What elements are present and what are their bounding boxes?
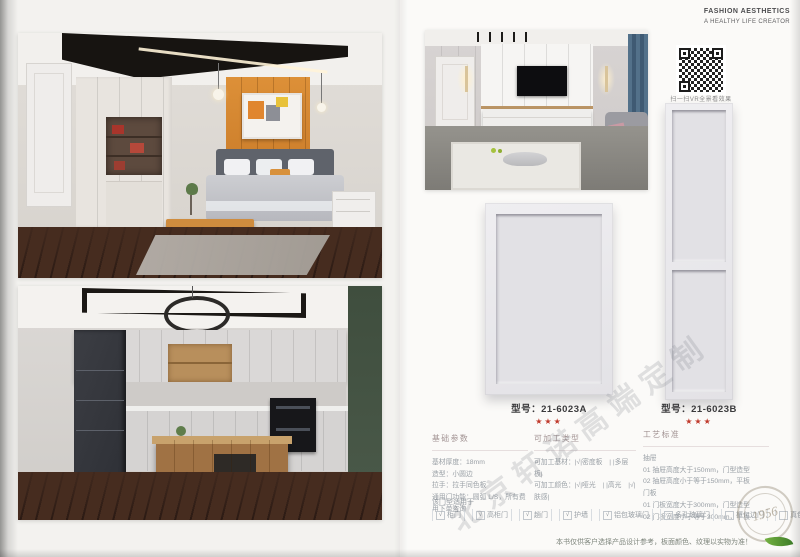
door-panel-b bbox=[665, 103, 733, 400]
checkbox-icon: √ bbox=[563, 511, 572, 520]
qr-finder bbox=[679, 48, 690, 59]
spec-process-types: 可加工类型 可加工基材：|√|密度板 | |多层板| 可加工颜色：|√|哑光 |… bbox=[534, 432, 636, 504]
spec-basic-title: 基础参数 bbox=[432, 432, 528, 451]
kitchen-oven-display bbox=[276, 406, 310, 409]
spec-line: 拉手：拉手同色板 bbox=[432, 480, 528, 492]
footer-note: 本书仅供客户选择产品设计参考，板面颜色、纹理以实物为准！ bbox=[556, 537, 752, 547]
bedroom-red-box bbox=[114, 161, 125, 170]
spec-line: 抽屉 bbox=[643, 453, 769, 465]
bedroom-plant-stand bbox=[190, 195, 192, 215]
kitchen-floor bbox=[18, 472, 382, 520]
bedroom-pendant-cord bbox=[321, 73, 322, 105]
bedroom-duvet bbox=[206, 175, 344, 221]
applicable-item-label: 趟门 bbox=[534, 510, 548, 520]
checkbox-icon bbox=[664, 511, 673, 520]
bedroom-pillow bbox=[288, 159, 314, 175]
living-chandelier bbox=[477, 32, 537, 42]
brand-line1: FASHION AESTHETICS bbox=[704, 7, 790, 18]
door-panel-a-inner bbox=[496, 214, 602, 384]
applicable-item: √护墙 bbox=[559, 509, 592, 521]
checkbox-icon: √ bbox=[603, 511, 612, 520]
brand-line2: A HEALTHY LIFE CREATOR bbox=[704, 18, 790, 27]
bedroom-art-shape bbox=[266, 105, 280, 121]
kitchen-tall-cabinet bbox=[74, 330, 126, 482]
applicable-item-label: 多孔玻璃门 bbox=[675, 510, 710, 520]
bedroom-wardrobe-drawers bbox=[106, 181, 162, 228]
spec-standard-title: 工艺标准 bbox=[643, 428, 769, 447]
kitchen-oven-display bbox=[276, 428, 310, 431]
checkbox-icon bbox=[725, 511, 734, 520]
applicable-label: 该门型适用于 bbox=[432, 497, 474, 507]
living-sconce bbox=[465, 66, 468, 92]
bedroom-photo bbox=[18, 33, 382, 278]
living-console-drawer-line bbox=[483, 117, 591, 118]
stamp-year: 1956 bbox=[740, 489, 791, 540]
kitchen-tall-shelf bbox=[76, 370, 124, 371]
model-number-a: 型号：21-6023A bbox=[454, 401, 644, 415]
applicable-row: √柜门 √高柜门 √趟门 √护墙 √铝包玻璃门 多孔玻璃门 框包边门 真包边门 … bbox=[432, 509, 762, 521]
living-pear-decor bbox=[498, 149, 502, 153]
bedroom-pillow bbox=[224, 159, 250, 175]
kitchen-tall-shelf bbox=[76, 430, 124, 431]
qr-code-icon bbox=[679, 48, 723, 92]
spec-line: 造型：小圆边 bbox=[432, 469, 528, 481]
bedroom-door-panel bbox=[34, 73, 64, 193]
door-panel-a bbox=[485, 203, 613, 395]
living-room-photo bbox=[425, 30, 648, 190]
applicable-item-label: 铝包玻璃门 bbox=[614, 510, 649, 520]
rating-stars-b: ★★★ bbox=[619, 417, 779, 426]
page-edge-right bbox=[790, 0, 800, 557]
bedroom-niche-shelf bbox=[106, 136, 162, 138]
page-edge-bottom bbox=[0, 549, 800, 557]
kitchen-ring-light bbox=[164, 296, 230, 334]
checkbox-icon: √ bbox=[476, 511, 485, 520]
bedroom-red-box bbox=[112, 125, 124, 134]
catalog-spread: FASHION AESTHETICS A HEALTHY LIFE CREATO… bbox=[0, 0, 800, 557]
applicable-item-label: 柜门 bbox=[447, 510, 461, 520]
checkbox-icon: √ bbox=[523, 511, 532, 520]
rating-stars-a: ★★★ bbox=[454, 417, 644, 426]
living-tv bbox=[517, 66, 567, 96]
qr-caption: 扫一扫VR全景看效果 bbox=[656, 94, 746, 103]
qr-finder bbox=[679, 81, 690, 92]
bedroom-pendant-globe bbox=[213, 89, 224, 100]
door-panel-b-lower bbox=[672, 270, 726, 392]
spec-process-title: 可加工类型 bbox=[534, 432, 636, 451]
spec-line: 可加工基材：|√|密度板 | |多层板| bbox=[534, 457, 636, 481]
applicable-item: √趟门 bbox=[519, 509, 552, 521]
bedroom-nightstand bbox=[332, 191, 376, 229]
spec-line: 可加工颜色：|√|哑光 | |高光 |√|肤感| bbox=[534, 480, 636, 504]
model-block-b: 型号：21-6023B ★★★ bbox=[619, 401, 779, 426]
applicable-item: √高柜门 bbox=[472, 509, 512, 521]
bedroom-nightstand-drawer bbox=[336, 211, 370, 212]
brand-header: FASHION AESTHETICS A HEALTHY LIFE CREATO… bbox=[704, 7, 790, 27]
checkbox-icon: √ bbox=[436, 511, 445, 520]
kitchen-ring-cord bbox=[192, 286, 193, 298]
bedroom-rug bbox=[136, 235, 330, 275]
applicable-item: 多孔玻璃门 bbox=[660, 509, 714, 521]
model-number-b: 型号：21-6023B bbox=[619, 401, 779, 415]
bedroom-throw bbox=[206, 201, 344, 211]
kitchen-niche-shelf bbox=[168, 362, 232, 364]
living-coffee-table bbox=[503, 152, 547, 166]
spec-line: 基材厚度：18mm bbox=[432, 457, 528, 469]
spec-line: 02 抽屉高度小于等于150mm，平板 bbox=[643, 476, 769, 488]
door-panel-b-upper bbox=[672, 110, 726, 262]
kitchen-photo bbox=[18, 286, 382, 520]
applicable-item: √铝包玻璃门 bbox=[599, 509, 653, 521]
model-block-a: 型号：21-6023A ★★★ bbox=[454, 401, 644, 426]
applicable-item-label: 护墙 bbox=[574, 510, 588, 520]
spec-line: 01 抽屉高度大于150mm，门型造型 bbox=[643, 465, 769, 477]
bedroom-red-box bbox=[130, 143, 144, 153]
kitchen-island-plant bbox=[176, 426, 186, 436]
qr-finder bbox=[712, 48, 723, 59]
bedroom-plant bbox=[186, 183, 198, 195]
living-pear-decor bbox=[491, 148, 496, 153]
bedroom-pendant-cord bbox=[218, 63, 219, 91]
page-edge-left bbox=[0, 0, 18, 557]
page-spine bbox=[394, 0, 408, 557]
kitchen-tall-shelf bbox=[76, 400, 124, 401]
bedroom-art-shape bbox=[276, 97, 288, 107]
bedroom-niche-shelf bbox=[106, 155, 162, 157]
bedroom-pendant-globe bbox=[317, 103, 326, 112]
living-rug bbox=[451, 142, 581, 190]
applicable-item: √柜门 bbox=[432, 509, 465, 521]
bedroom-art-shape bbox=[248, 101, 264, 119]
living-sconce bbox=[605, 66, 608, 92]
applicable-item-label: 高柜门 bbox=[487, 510, 508, 520]
bedroom-nightstand-drawer bbox=[336, 199, 370, 200]
